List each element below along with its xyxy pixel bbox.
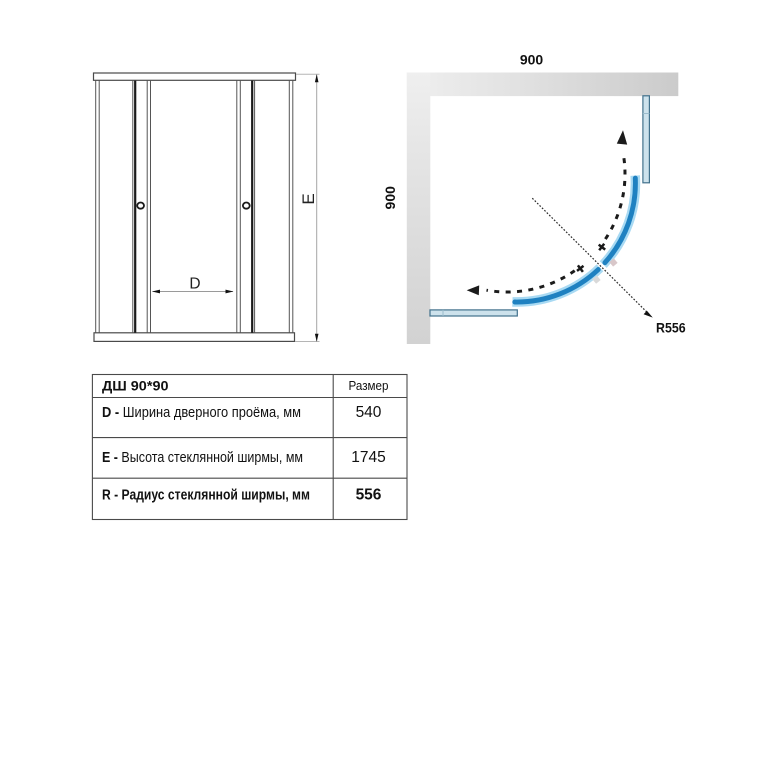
svg-text:D - Ширина дверного проёма, мм: D - Ширина дверного проёма, мм [102, 404, 301, 421]
svg-text:E: E [299, 193, 318, 204]
svg-text:Размер: Размер [349, 378, 389, 393]
svg-text:900: 900 [382, 186, 398, 210]
svg-text:ДШ 90*90: ДШ 90*90 [102, 378, 169, 394]
svg-text:556: 556 [356, 487, 382, 504]
svg-text:R556: R556 [656, 319, 686, 335]
svg-text:D: D [189, 276, 200, 293]
svg-text:1745: 1745 [351, 449, 385, 466]
svg-text:900: 900 [520, 52, 544, 68]
svg-text:540: 540 [356, 404, 382, 421]
svg-text:R - Радиус стеклянной ширмы, м: R - Радиус стеклянной ширмы, мм [102, 487, 310, 504]
svg-text:E - Высота стеклянной ширмы, м: E - Высота стеклянной ширмы, мм [102, 449, 303, 466]
